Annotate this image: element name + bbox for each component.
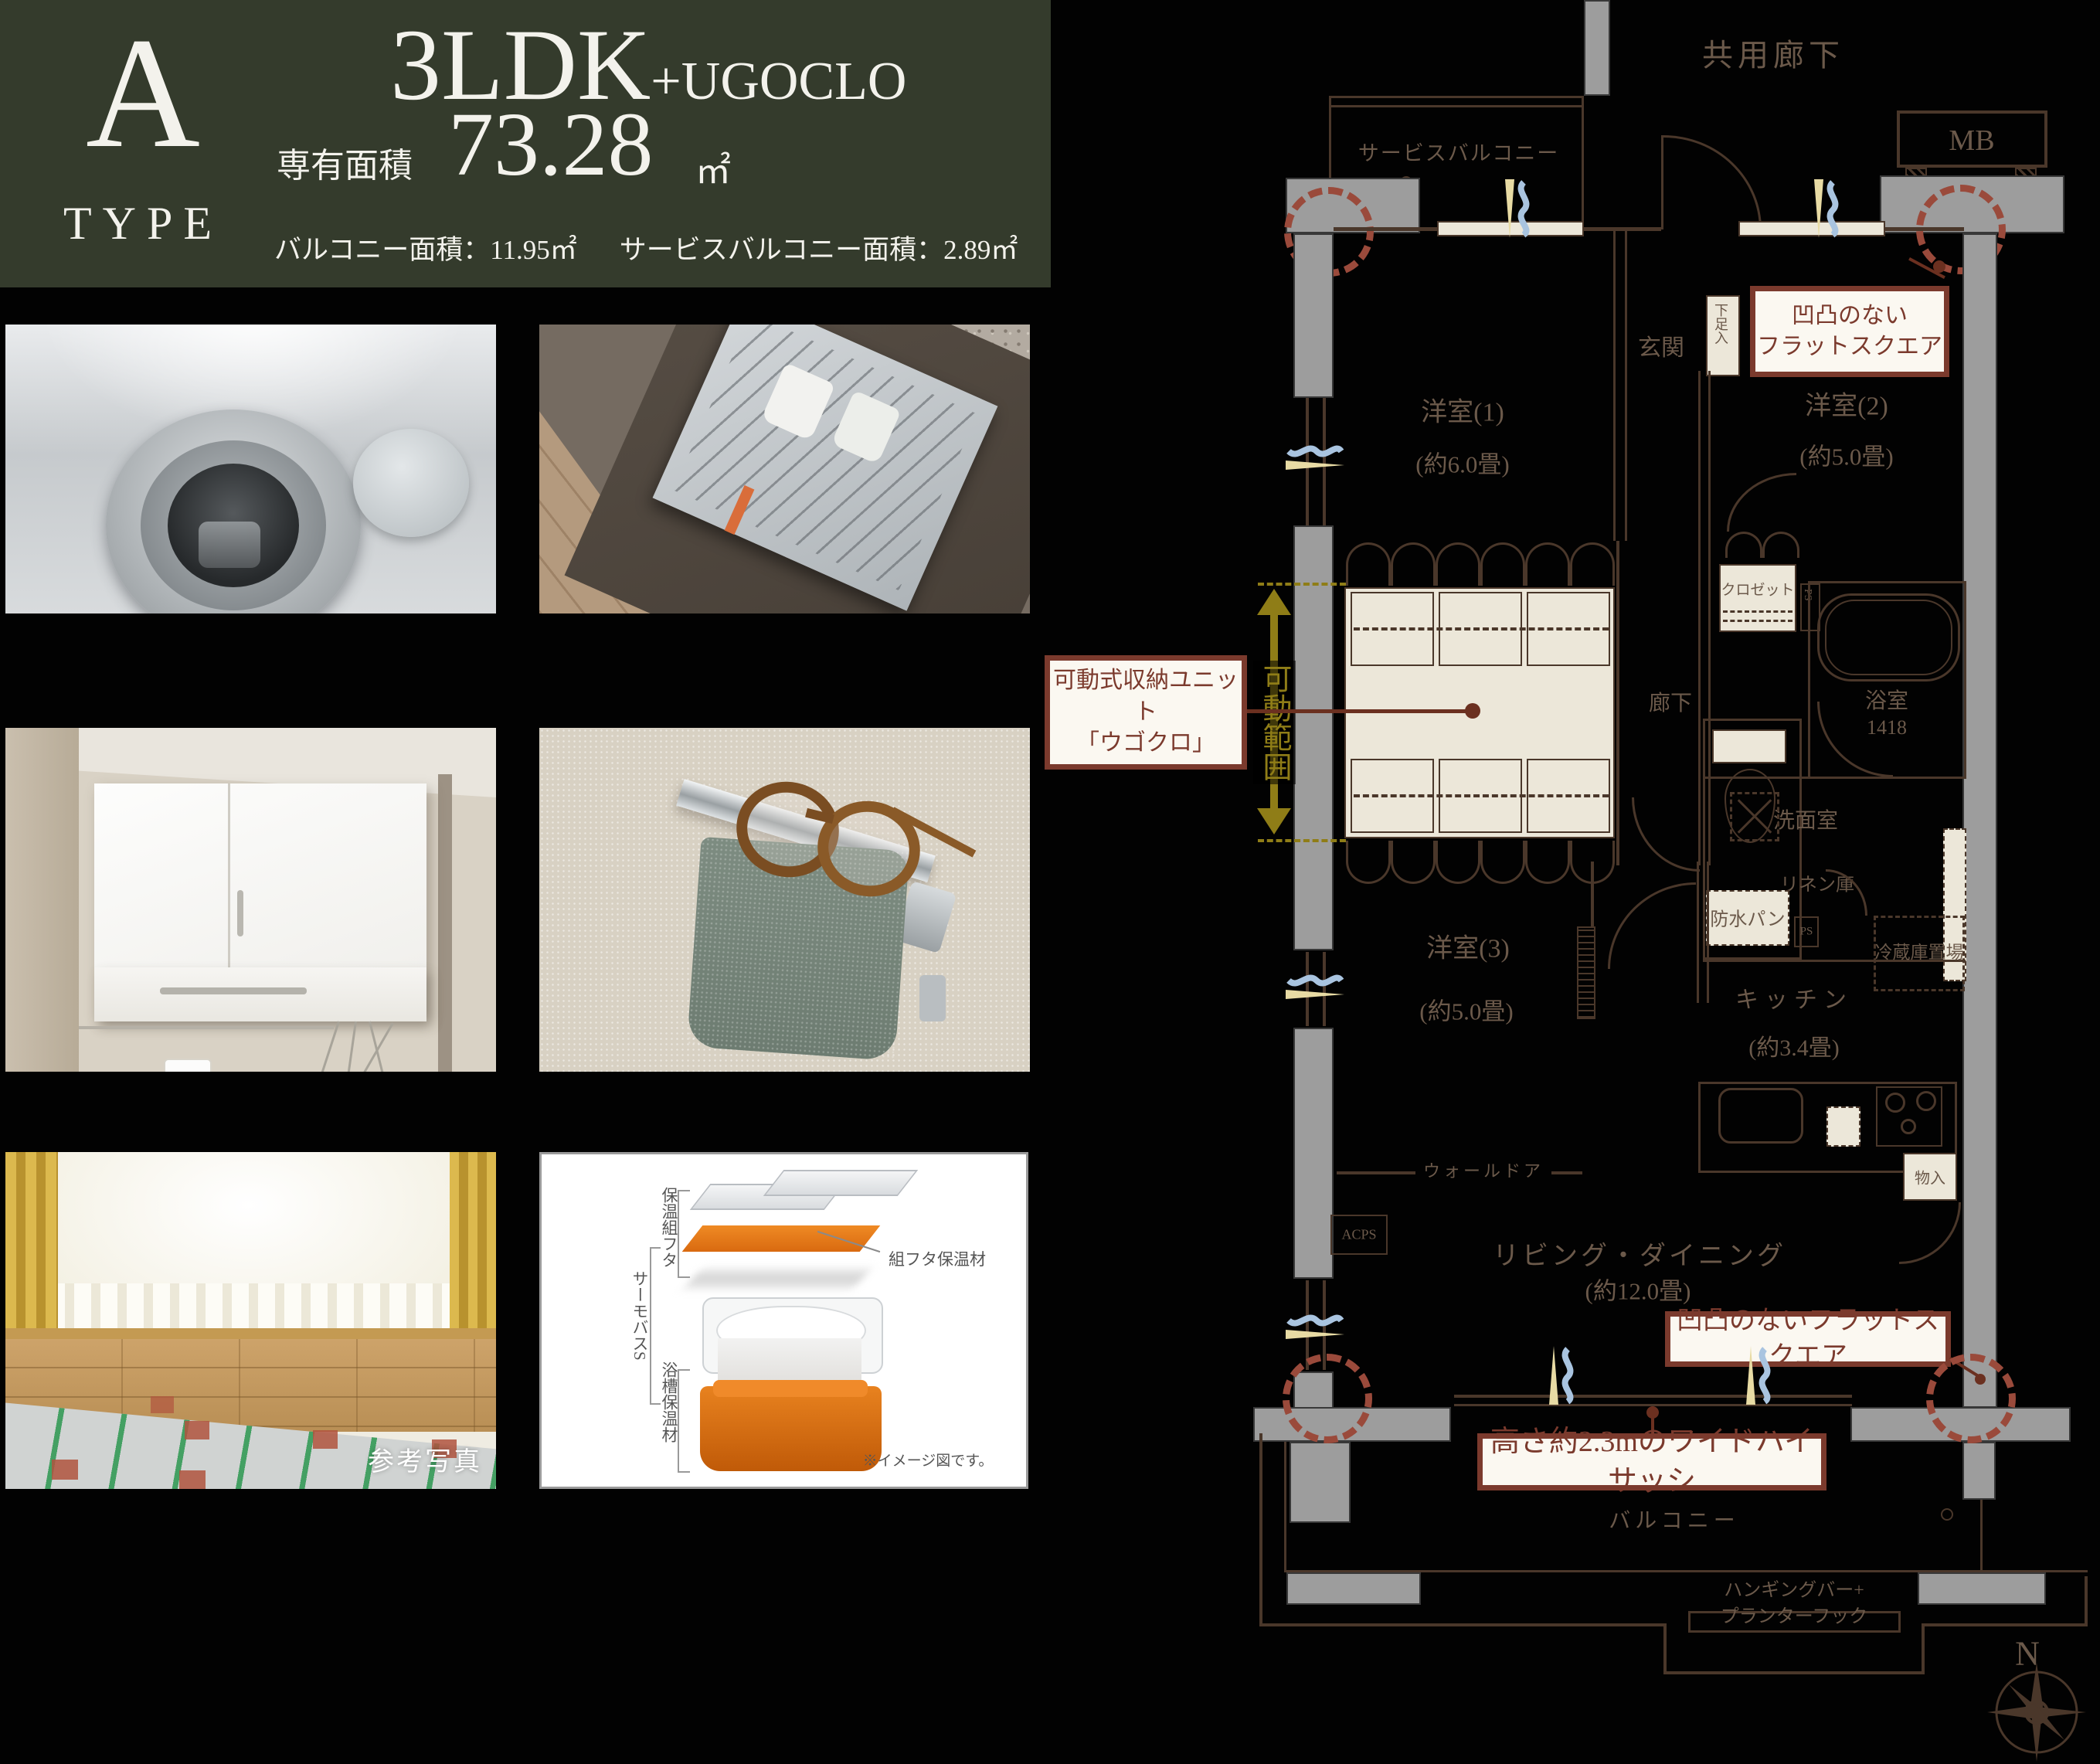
callout-flat1-line2: フラットスクエア <box>1757 331 1942 363</box>
label-fridge: 冷蔵庫置場 <box>1875 937 1964 964</box>
label-hallway: 廊下 <box>1649 686 1692 717</box>
wall-room3-east <box>1591 862 1594 926</box>
callout-flat-square-bottom: 凹凸のないフラットスクエア <box>1665 1311 1951 1367</box>
wall-cross-br-v <box>1962 1442 1996 1500</box>
wall-right <box>1962 233 1997 1408</box>
toilet-door-arc <box>1632 797 1700 872</box>
sash-south-line1 <box>1454 1395 1852 1398</box>
label-room1: 洋室(1) <box>1421 391 1504 429</box>
callout-wide-sash: 高さ約2.3mのワイドハイサッシ <box>1477 1433 1826 1490</box>
closet-door-arc <box>1727 473 1796 532</box>
kitchen-sink <box>1718 1088 1803 1144</box>
label-room3: 洋室(3) <box>1426 927 1510 965</box>
callout-ugoclo: 可動式収納ユニット 「ウゴクロ」 <box>1045 655 1247 770</box>
toilet-tank <box>1712 729 1786 763</box>
brochure-page: A TYPE 3LDK+UGOCLO 専有面積 73.28 ㎡ バルコニー面積：… <box>0 0 2100 1764</box>
ugoclo-dash-bottom <box>1354 794 1609 797</box>
callout-flat2-text: 凹凸のないフラットスクエア <box>1670 1303 1945 1375</box>
range-arrow-up <box>1257 589 1291 615</box>
flat-square-circle-bl <box>1283 1354 1372 1443</box>
label-room2-size: (約5.0畳) <box>1799 437 1893 472</box>
label-movable-range: 可動範囲 <box>1253 661 1296 784</box>
wall-top-stub <box>1584 0 1610 96</box>
label-room1-size: (約6.0畳) <box>1415 445 1509 480</box>
label-waterproof-pan: 防水パン <box>1710 904 1785 931</box>
wardrobe-arcs-bottom <box>1346 841 1615 884</box>
callout-flat1-line1: 凹凸のない <box>1792 301 1908 332</box>
closet-shelf-1 <box>1723 610 1792 613</box>
balcony-recess-left <box>1663 1623 1667 1674</box>
label-hanging-bar: ハンギングバー+ <box>1724 1575 1864 1602</box>
label-room3-size: (約5.0畳) <box>1419 992 1513 1027</box>
kitchen-door-post <box>1697 862 1709 1003</box>
label-washroom: 洗面室 <box>1773 804 1838 834</box>
wall-left-1 <box>1293 233 1334 398</box>
balcony-outer-bottom-2 <box>1922 1623 2088 1626</box>
balcony-outer-left <box>1259 1433 1262 1626</box>
ugoclo-leader <box>1247 709 1471 713</box>
label-common-corridor: 共用廊下 <box>1702 30 1844 75</box>
closet-shelf-2 <box>1723 620 1792 622</box>
label-mb: MB <box>1949 124 1994 158</box>
wall-left-3 <box>1293 1028 1334 1279</box>
wall-door-stack <box>1577 926 1595 1019</box>
airflow-icon-north-2 <box>1799 179 1845 238</box>
balcony-recess-bottom <box>1663 1671 1925 1674</box>
label-service-balcony: サービスバルコニー <box>1358 137 1559 167</box>
callout-ugoclo-line1: 可動式収納ユニット <box>1050 665 1242 728</box>
burner-1 <box>1885 1093 1905 1113</box>
wall-balcony-bl <box>1286 1572 1421 1605</box>
wardrobe-arcs-top <box>1346 542 1615 586</box>
storage-door-arc <box>1899 1202 1961 1264</box>
label-north: N <box>2015 1634 2040 1674</box>
wall-bath-south <box>1703 777 1966 779</box>
closet-bifold <box>1725 532 1799 558</box>
label-planter-hook: プランターフック <box>1721 1601 1868 1628</box>
ugoclo-dash-top <box>1354 627 1609 630</box>
flat-square-circle-br <box>1926 1354 2016 1443</box>
wall-room1-room2 <box>1613 229 1627 541</box>
service-balcony-rail <box>1329 105 1584 107</box>
airflow-icon-north-1 <box>1490 179 1536 238</box>
wall-balcony-br <box>1918 1572 2046 1605</box>
wall-left-2 <box>1293 525 1334 950</box>
wall-corridor-west <box>1616 541 1619 865</box>
balcony-divider <box>1980 1500 1983 1572</box>
balcony-outer-right <box>2085 1576 2088 1626</box>
entrance-door-arc <box>1663 135 1762 229</box>
label-ps-2: PS <box>1800 926 1813 939</box>
counter-item <box>1826 1106 1860 1147</box>
bathtub-inner <box>1825 600 1952 675</box>
label-entrance: 玄関 <box>1638 328 1684 362</box>
range-dash-bottom <box>1258 839 1346 842</box>
label-room2: 洋室(2) <box>1805 385 1888 423</box>
balcony-inner-left <box>1284 1442 1286 1572</box>
label-living-size: (約12.0畳) <box>1585 1272 1691 1307</box>
callout-flat-square-top: 凹凸のない フラットスクエア <box>1750 286 1949 377</box>
airflow-icon-left-1 <box>1286 439 1344 485</box>
airflow-icon-left-3 <box>1286 1308 1344 1354</box>
range-arrow-down <box>1257 808 1291 834</box>
label-acps: ACPS <box>1341 1227 1376 1243</box>
airflow-icon-south-1 <box>1534 1346 1580 1405</box>
wall-cross-bl-v <box>1290 1442 1351 1523</box>
label-kitchen: キッチン <box>1735 981 1853 1015</box>
label-living-dining: リビング・ダイニング <box>1493 1235 1786 1273</box>
floor-plan: 共用廊下 サービスバルコニー MB 玄関 下足入 <box>0 0 2100 1764</box>
airflow-icon-south-2 <box>1731 1346 1777 1405</box>
drain-circle-bottom <box>1941 1508 1953 1521</box>
range-dash-top <box>1258 583 1346 586</box>
label-shoe-box: 下足入 <box>1711 303 1731 345</box>
balcony-recess-right <box>1922 1623 1925 1674</box>
balcony-outer-bottom-1 <box>1259 1623 1667 1626</box>
label-balcony: バルコニー <box>1609 1504 1739 1535</box>
label-wall-door: ウォールドア <box>1415 1157 1551 1182</box>
burner-2 <box>1916 1091 1936 1111</box>
callout-ugoclo-line2: 「ウゴクロ」 <box>1076 728 1215 760</box>
label-kitchen-size: (約3.4畳) <box>1748 1028 1839 1062</box>
burner-3 <box>1901 1119 1916 1134</box>
callout-sash-text: 高さ約2.3mのワイドハイサッシ <box>1483 1422 1821 1502</box>
ugoclo-leader-dot <box>1465 703 1480 719</box>
linen-door-arc <box>1826 869 1867 916</box>
kitchen-door-arc <box>1608 882 1696 969</box>
airflow-icon-left-2 <box>1286 968 1344 1015</box>
label-closet: クロゼット <box>1721 579 1794 600</box>
label-storage: 物入 <box>1915 1166 1945 1188</box>
